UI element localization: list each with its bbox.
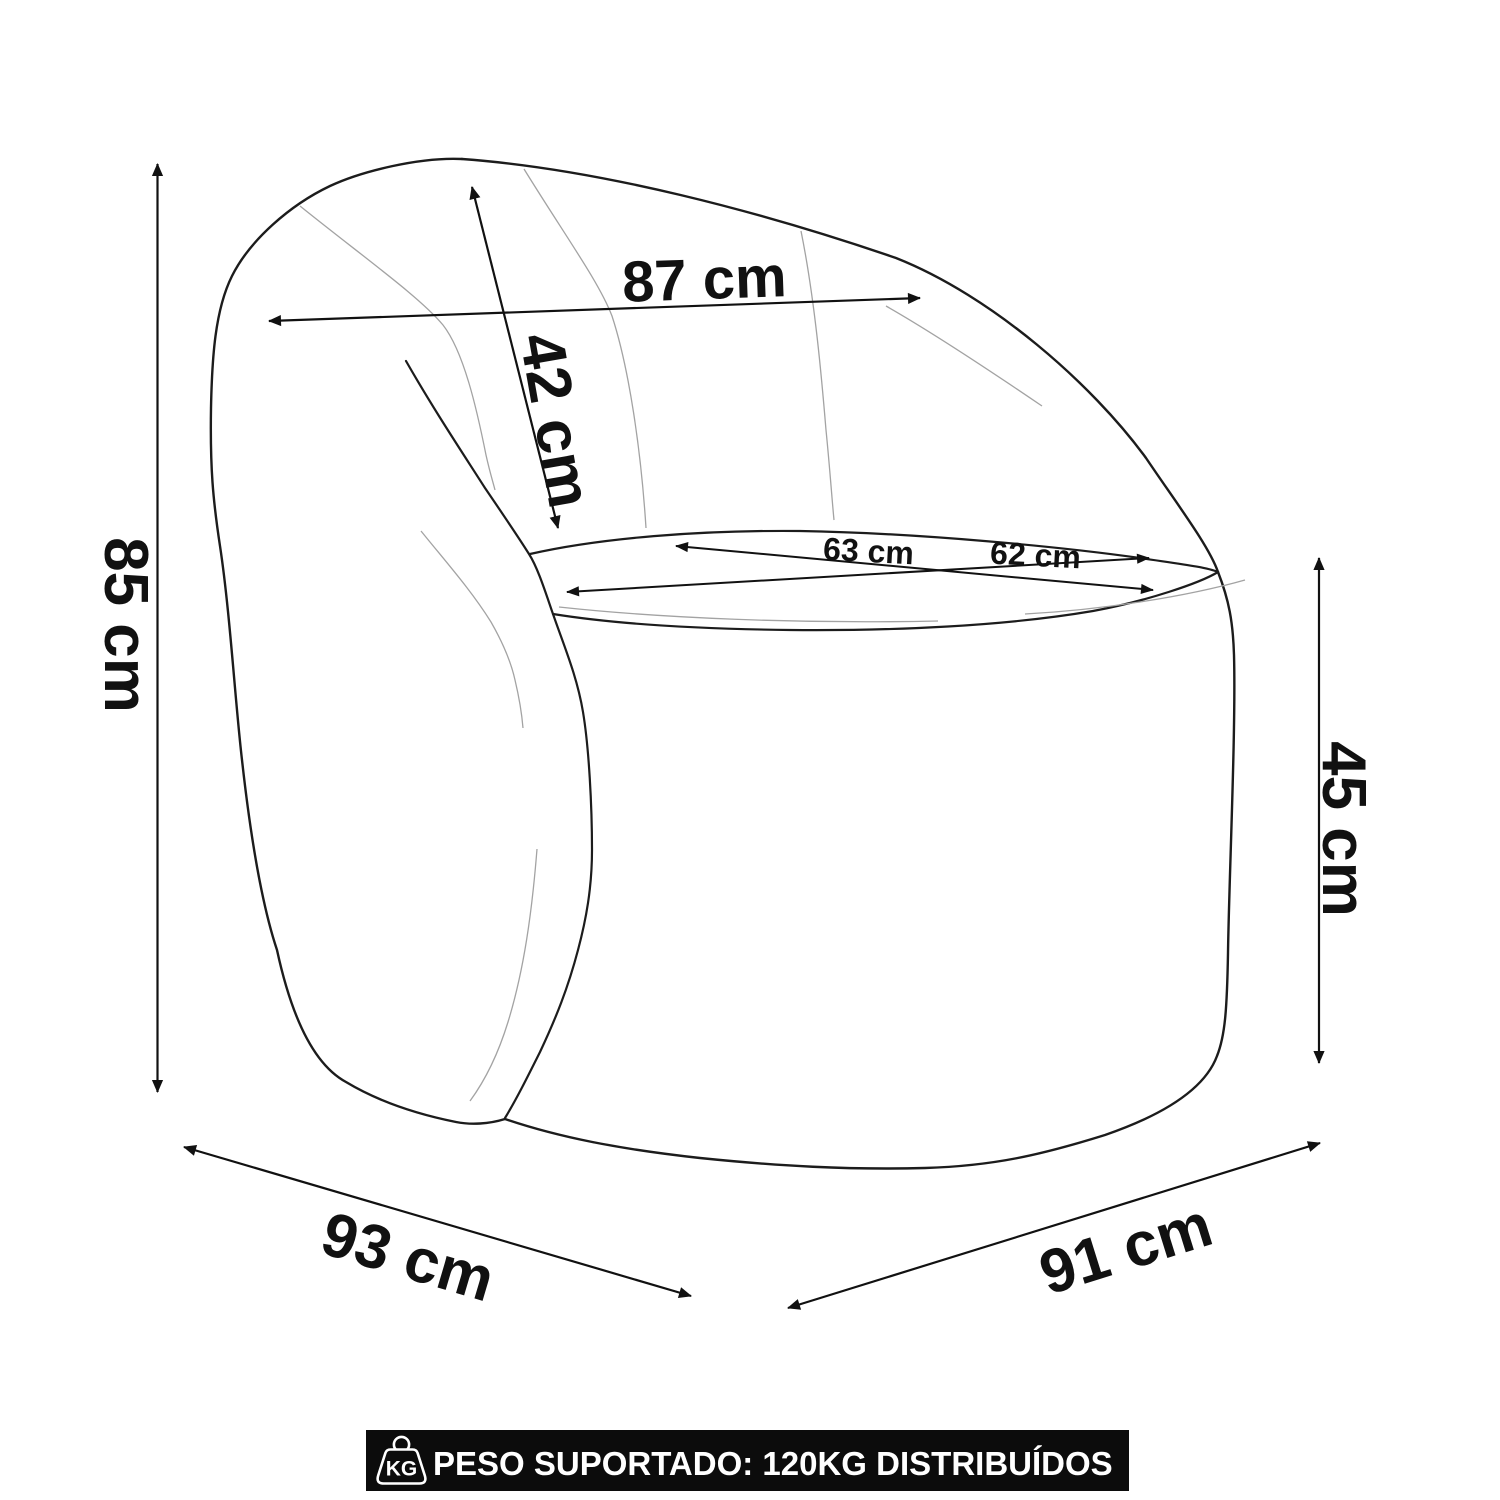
svg-text:PESO SUPORTADO: 120KG DISTRIBU: PESO SUPORTADO: 120KG DISTRIBUÍDOS: [433, 1445, 1113, 1482]
svg-text:85 cm: 85 cm: [91, 537, 160, 713]
svg-text:KG: KG: [386, 1458, 418, 1481]
svg-text:63 cm: 63 cm: [822, 531, 914, 572]
svg-text:45 cm: 45 cm: [1309, 741, 1378, 917]
svg-text:87 cm: 87 cm: [621, 244, 788, 315]
svg-text:62 cm: 62 cm: [989, 535, 1081, 576]
